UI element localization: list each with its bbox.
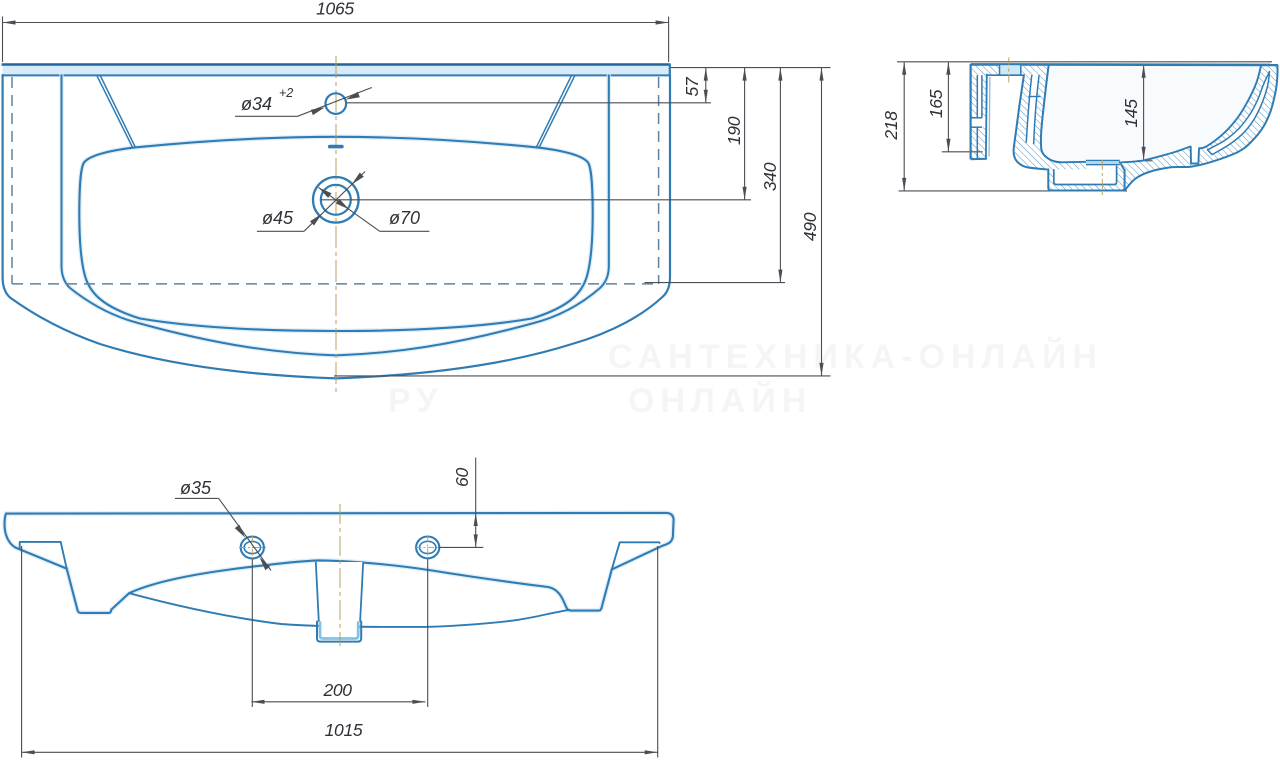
svg-text:ø70: ø70	[389, 208, 420, 228]
svg-text:165: 165	[926, 89, 946, 118]
svg-text:ø45: ø45	[262, 208, 294, 228]
svg-text:340: 340	[760, 162, 780, 191]
svg-text:+2: +2	[279, 86, 293, 100]
svg-text:200: 200	[322, 680, 352, 700]
svg-text:САНТЕХНИКА-ОНЛАЙН: САНТЕХНИКА-ОНЛАЙН	[608, 337, 1103, 376]
svg-text:145: 145	[1121, 99, 1141, 128]
svg-text:1065: 1065	[316, 0, 354, 19]
svg-text:190: 190	[724, 116, 744, 145]
svg-text:ø35: ø35	[180, 478, 212, 498]
svg-text:ø34: ø34	[241, 94, 272, 114]
svg-text:РУ: РУ	[388, 382, 443, 420]
svg-text:60: 60	[452, 468, 472, 487]
svg-text:57: 57	[682, 76, 702, 96]
svg-text:490: 490	[800, 212, 820, 241]
svg-text:ОНЛАЙН: ОНЛАЙН	[628, 381, 812, 420]
svg-text:218: 218	[881, 111, 901, 141]
svg-text:1015: 1015	[325, 720, 363, 740]
